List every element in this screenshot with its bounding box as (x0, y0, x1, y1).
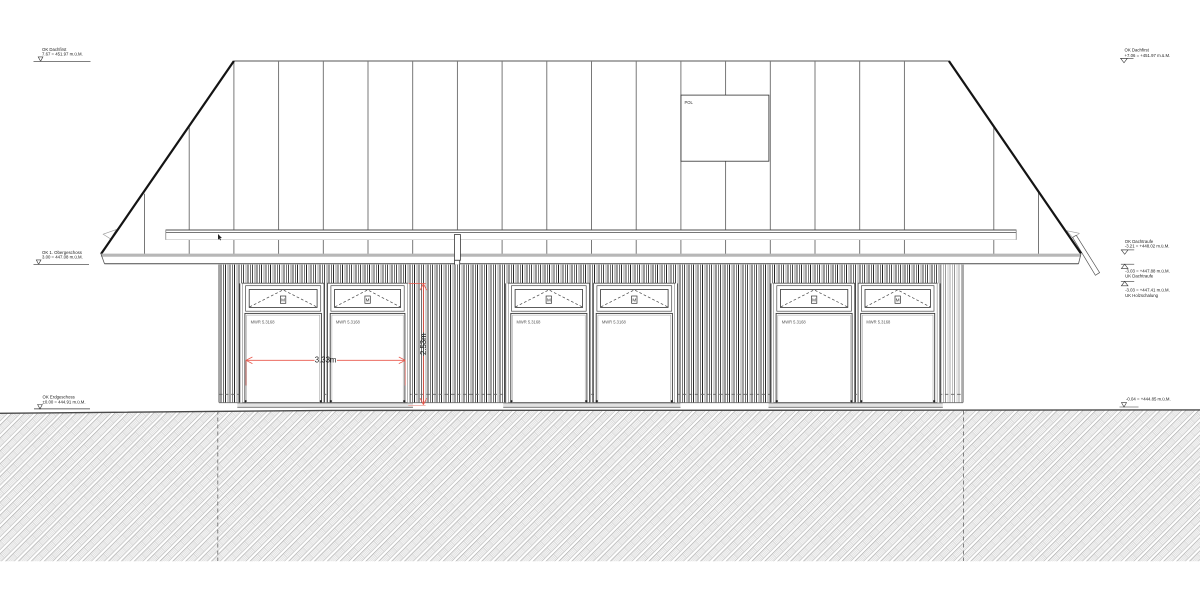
svg-text:MWR 5.3168: MWR 5.3168 (251, 320, 276, 325)
svg-text:UK Holzschalung: UK Holzschalung (1125, 293, 1159, 298)
svg-text:±0.00 = 444.91 m.ü.M.: ±0.00 = 444.91 m.ü.M. (43, 399, 86, 404)
svg-text:UK Dachtraufe: UK Dachtraufe (1125, 273, 1154, 278)
svg-text:MWR 5.3168: MWR 5.3168 (602, 320, 627, 325)
svg-text:+7.06 = +451.97 m.ü.M.: +7.06 = +451.97 m.ü.M. (1125, 53, 1171, 58)
svg-text:MWR 5.3168: MWR 5.3168 (782, 320, 807, 325)
svg-text:-3.21 = +448.02 m.ü.M.: -3.21 = +448.02 m.ü.M. (1125, 244, 1170, 249)
svg-text:3.33m: 3.33m (315, 356, 337, 365)
svg-text:-0.04 = +444.85 m.ü.M.: -0.04 = +444.85 m.ü.M. (1126, 397, 1171, 402)
svg-text:POL: POL (685, 100, 694, 105)
svg-text:M: M (632, 298, 636, 303)
svg-text:M: M (366, 298, 370, 303)
svg-text:2.53m: 2.53m (419, 333, 428, 355)
svg-text:MWR 5.3168: MWR 5.3168 (517, 320, 542, 325)
svg-text:OK Dachfirst: OK Dachfirst (1125, 47, 1150, 52)
svg-text:M: M (281, 298, 285, 303)
svg-text:7.67 = 451.97 m.ü.M.: 7.67 = 451.97 m.ü.M. (42, 52, 83, 57)
svg-text:MWR 5.3168: MWR 5.3168 (866, 320, 891, 325)
svg-text:3.00 = 447.08 m.ü.M.: 3.00 = 447.08 m.ü.M. (42, 255, 83, 260)
svg-text:M: M (547, 298, 551, 303)
svg-text:MWR 5.3168: MWR 5.3168 (336, 320, 361, 325)
svg-text:-3.03 = +447.41 m.ü.M.: -3.03 = +447.41 m.ü.M. (1125, 288, 1170, 293)
svg-text:M: M (896, 298, 900, 303)
svg-text:M: M (812, 298, 816, 303)
